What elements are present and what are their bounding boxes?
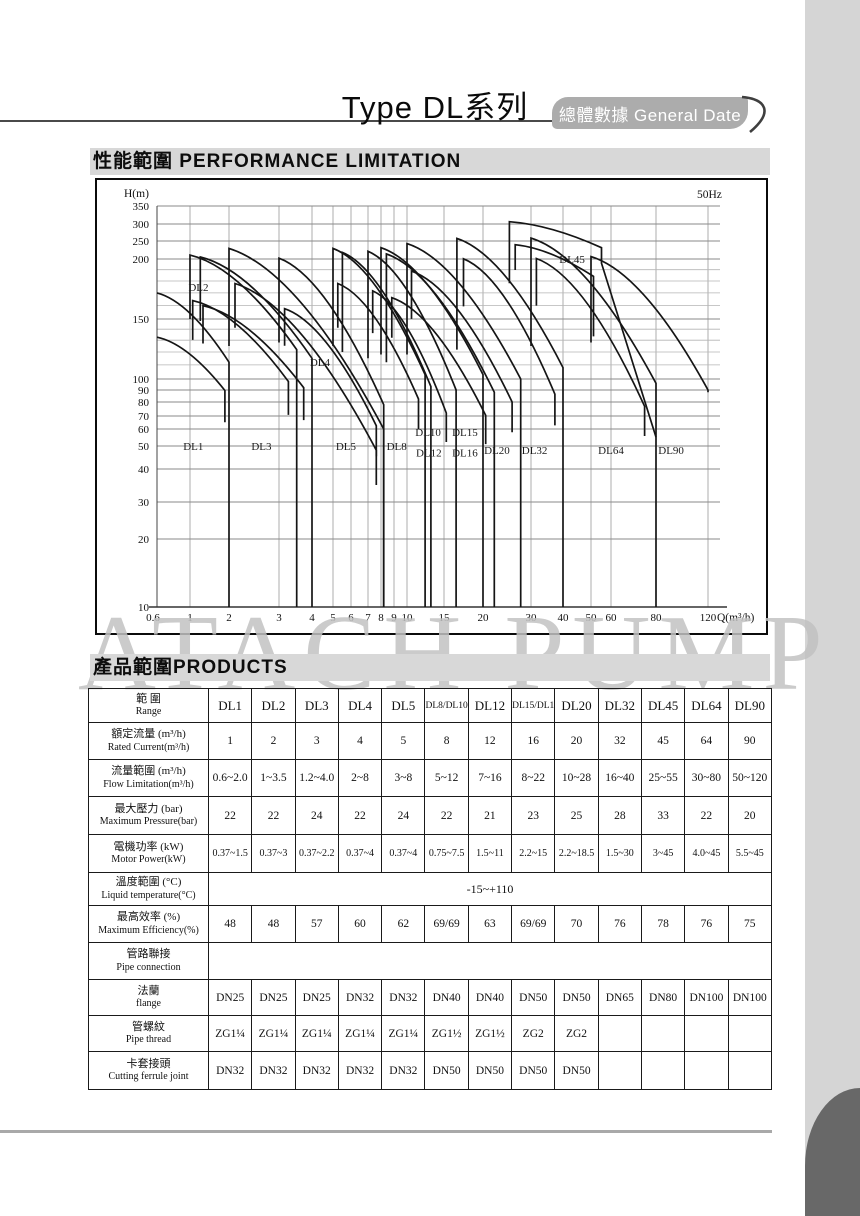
- row-label: 最大壓力 (bar)Maximum Pressure(bar): [89, 797, 209, 835]
- value-cell: 24: [295, 797, 338, 835]
- value-cell: DN25: [295, 980, 338, 1016]
- value-cell: DN50: [512, 980, 555, 1016]
- value-cell: ZG1¼: [295, 1016, 338, 1052]
- column-header-DL15-DL16: DL15/DL16: [512, 689, 555, 723]
- table-row: 最大壓力 (bar)Maximum Pressure(bar)222224222…: [89, 797, 772, 835]
- x-tick-label: 40: [558, 612, 570, 624]
- row-label-en: Range: [89, 706, 208, 718]
- y-tick-label: 100: [133, 374, 150, 386]
- value-cell: DN80: [641, 980, 684, 1016]
- value-cell: 22: [425, 797, 468, 835]
- value-cell: ZG1½: [468, 1016, 511, 1052]
- value-cell: 2: [252, 723, 295, 760]
- x-tick-label: 10: [402, 612, 414, 624]
- row-label-en: Rated Current(m³/h): [89, 742, 208, 754]
- value-cell: ZG1¼: [252, 1016, 295, 1052]
- value-cell: 76: [685, 906, 728, 943]
- value-cell: ZG2: [555, 1016, 598, 1052]
- value-cell: DN100: [685, 980, 728, 1016]
- value-cell: 32: [598, 723, 641, 760]
- column-header-DL2: DL2: [252, 689, 295, 723]
- value-cell: 78: [641, 906, 684, 943]
- row-label-zh: 最大壓力 (bar): [89, 803, 208, 817]
- value-cell: 63: [468, 906, 511, 943]
- value-cell: ZG1¼: [338, 1016, 381, 1052]
- row-label: 溫度範圍 (°C)Liquid temperature(°C): [89, 873, 209, 906]
- x-tick-label: 4: [309, 612, 315, 624]
- performance-section-header: 性能範圍 PERFORMANCE LIMITATION: [90, 148, 770, 175]
- value-cell: ZG1¼: [382, 1016, 425, 1052]
- frequency-label: 50Hz: [697, 189, 722, 201]
- value-cell: 1.5~30: [598, 835, 641, 873]
- value-cell: 75: [728, 906, 771, 943]
- products-table: 範 圍RangeDL1DL2DL3DL4DL5DL8/DL10DL12DL15/…: [88, 688, 772, 1090]
- column-header-DL20: DL20: [555, 689, 598, 723]
- column-header-DL45: DL45: [641, 689, 684, 723]
- row-label: 法蘭flange: [89, 980, 209, 1016]
- x-tick-label: 9: [391, 612, 397, 624]
- value-cell: 25: [555, 797, 598, 835]
- row-label: 管路聯接Pipe connection: [89, 943, 209, 980]
- row-label-zh: 額定流量 (m³/h): [89, 728, 208, 742]
- value-cell: DN32: [295, 1052, 338, 1090]
- y-tick-label: 350: [133, 201, 150, 213]
- pump-region-label-DL5: DL5: [336, 441, 357, 453]
- value-cell: 3~8: [382, 760, 425, 797]
- value-cell: DN25: [209, 980, 252, 1016]
- value-cell: 5~12: [425, 760, 468, 797]
- value-cell: 24: [382, 797, 425, 835]
- x-tick-label: 7: [365, 612, 371, 624]
- value-cell: 4.0~45: [685, 835, 728, 873]
- value-cell: DN32: [382, 1052, 425, 1090]
- value-cell: 1~3.5: [252, 760, 295, 797]
- row-label: 流量範圍 (m³/h)Flow Limitation(m³/h): [89, 760, 209, 797]
- pump-region-label-DL20: DL20: [484, 445, 510, 457]
- pump-region-label-DL64: DL64: [598, 445, 624, 457]
- value-cell: DN50: [555, 980, 598, 1016]
- value-cell: [641, 1052, 684, 1090]
- value-cell: 22: [209, 797, 252, 835]
- row-label-en: Motor Power(kW): [89, 854, 208, 866]
- column-header-DL90: DL90: [728, 689, 771, 723]
- y-tick-label: 90: [138, 385, 150, 397]
- value-cell: DN50: [555, 1052, 598, 1090]
- table-row: 流量範圍 (m³/h)Flow Limitation(m³/h)0.6~2.01…: [89, 760, 772, 797]
- value-cell: DN40: [468, 980, 511, 1016]
- table-row: 管螺紋Pipe threadZG1¼ZG1¼ZG1¼ZG1¼ZG1¼ZG1½ZG…: [89, 1016, 772, 1052]
- value-cell: 48: [209, 906, 252, 943]
- y-tick-label: 30: [138, 497, 150, 509]
- value-cell: 50~120: [728, 760, 771, 797]
- value-cell: 10~28: [555, 760, 598, 797]
- page-title: Type DL系列: [300, 82, 570, 127]
- value-cell: DN32: [338, 1052, 381, 1090]
- value-cell: 21: [468, 797, 511, 835]
- value-cell: [728, 1052, 771, 1090]
- value-cell: 30~80: [685, 760, 728, 797]
- table-row: 法蘭flangeDN25DN25DN25DN32DN32DN40DN40DN50…: [89, 980, 772, 1016]
- value-cell: 64: [685, 723, 728, 760]
- value-cell: 2.2~15: [512, 835, 555, 873]
- y-tick-label: 40: [138, 464, 150, 476]
- value-cell: 25~55: [641, 760, 684, 797]
- row-label-zh: 電機功率 (kW): [89, 841, 208, 855]
- row-label-zh: 溫度範圍 (°C): [89, 876, 208, 890]
- value-cell: DN25: [252, 980, 295, 1016]
- merged-value-cell: -15~+110: [209, 873, 772, 906]
- value-cell: 8~22: [512, 760, 555, 797]
- column-header-DL32: DL32: [598, 689, 641, 723]
- value-cell: 45: [641, 723, 684, 760]
- column-header-DL4: DL4: [338, 689, 381, 723]
- value-cell: 69/69: [512, 906, 555, 943]
- value-cell: 5.5~45: [728, 835, 771, 873]
- y-axis-title: H(m): [124, 188, 149, 200]
- row-label: 最高效率 (%)Maximum Efficiency(%): [89, 906, 209, 943]
- value-cell: [598, 1016, 641, 1052]
- value-cell: 1.2~4.0: [295, 760, 338, 797]
- value-cell: [728, 1016, 771, 1052]
- value-cell: 57: [295, 906, 338, 943]
- value-cell: 0.37~3: [252, 835, 295, 873]
- x-tick-label: 8: [378, 612, 384, 624]
- table-row: 最高效率 (%)Maximum Efficiency(%)48485760626…: [89, 906, 772, 943]
- row-label: 卡套接頭Cutting ferrule joint: [89, 1052, 209, 1090]
- y-tick-label: 200: [133, 254, 150, 266]
- value-cell: DN32: [209, 1052, 252, 1090]
- row-label-zh: 法蘭: [89, 985, 208, 999]
- row-label: 電機功率 (kW)Motor Power(kW): [89, 835, 209, 873]
- x-tick-label: 1: [187, 612, 193, 624]
- value-cell: 3: [295, 723, 338, 760]
- value-cell: 2.2~18.5: [555, 835, 598, 873]
- y-tick-label: 50: [138, 441, 150, 453]
- column-header-DL64: DL64: [685, 689, 728, 723]
- footer-rule: [0, 1130, 772, 1133]
- row-label-zh: 管路聯接: [89, 948, 208, 962]
- table-row: 電機功率 (kW)Motor Power(kW)0.37~1.50.37~30.…: [89, 835, 772, 873]
- value-cell: 12: [468, 723, 511, 760]
- x-tick-label: 0.6: [146, 612, 160, 624]
- value-cell: 4: [338, 723, 381, 760]
- row-label-en: Pipe connection: [89, 962, 208, 974]
- column-header-DL12: DL12: [468, 689, 511, 723]
- value-cell: DN50: [512, 1052, 555, 1090]
- pump-region-label-DL90: DL90: [658, 445, 684, 457]
- value-cell: DN65: [598, 980, 641, 1016]
- value-cell: 5: [382, 723, 425, 760]
- x-axis-title: Q(m³/h): [717, 612, 754, 624]
- y-tick-label: 20: [138, 534, 150, 546]
- section-tab-general-data: 總體數據 General Date: [552, 97, 748, 129]
- products-section-header: 產品範圍PRODUCTS: [90, 654, 770, 681]
- value-cell: ZG2: [512, 1016, 555, 1052]
- row-label-zh: 流量範圍 (m³/h): [89, 765, 208, 779]
- pump-region-label-DL32: DL32: [522, 445, 548, 457]
- value-cell: 0.37~2.2: [295, 835, 338, 873]
- pump-region-label-DL16: DL16: [452, 447, 478, 459]
- row-label-zh: 卡套接頭: [89, 1058, 208, 1072]
- pump-region-label-DL45: DL45: [559, 254, 585, 266]
- value-cell: [685, 1052, 728, 1090]
- x-tick-label: 6: [348, 612, 354, 624]
- table-row: 卡套接頭Cutting ferrule jointDN32DN32DN32DN3…: [89, 1052, 772, 1090]
- value-cell: 8: [425, 723, 468, 760]
- table-row: 溫度範圍 (°C)Liquid temperature(°C)-15~+110: [89, 873, 772, 906]
- value-cell: 0.6~2.0: [209, 760, 252, 797]
- pump-envelope-DL32: [457, 238, 563, 607]
- value-cell: ZG1¼: [209, 1016, 252, 1052]
- y-tick-label: 250: [133, 236, 150, 248]
- pump-region-label-DL10: DL10: [415, 427, 441, 439]
- value-cell: 22: [338, 797, 381, 835]
- pump-region-label-DL2: DL2: [188, 282, 208, 294]
- value-cell: 48: [252, 906, 295, 943]
- value-cell: DN100: [728, 980, 771, 1016]
- value-cell: DN32: [252, 1052, 295, 1090]
- pump-region-label-DL3: DL3: [251, 441, 272, 453]
- x-tick-label: 2: [226, 612, 232, 624]
- x-tick-label: 50: [586, 612, 598, 624]
- value-cell: 23: [512, 797, 555, 835]
- row-label-zh: 範 圍: [89, 693, 208, 707]
- value-cell: 3~45: [641, 835, 684, 873]
- x-tick-label: 30: [526, 612, 538, 624]
- pump-region-label-DL8: DL8: [387, 441, 408, 453]
- x-tick-label: 15: [439, 612, 451, 624]
- row-label-en: Pipe thread: [89, 1034, 208, 1046]
- row-label-en: Maximum Efficiency(%): [89, 925, 208, 937]
- value-cell: 0.37~1.5: [209, 835, 252, 873]
- row-label-en: Liquid temperature(°C): [89, 890, 208, 902]
- pump-envelope-DL2: [190, 255, 297, 607]
- value-cell: 0.75~7.5: [425, 835, 468, 873]
- value-cell: 0.37~4: [338, 835, 381, 873]
- value-cell: 33: [641, 797, 684, 835]
- row-label-en: flange: [89, 998, 208, 1010]
- row-label: 範 圍Range: [89, 689, 209, 723]
- y-tick-label: 70: [138, 411, 150, 423]
- value-cell: 2~8: [338, 760, 381, 797]
- performance-chart-svg: DL1DL2DL3DL4DL5DL8DL10DL12DL15DL16DL20DL…: [97, 180, 765, 632]
- value-cell: [598, 1052, 641, 1090]
- pump-envelope-DL2-inner: [193, 301, 289, 415]
- catalog-page: Type DL系列 總體數據 General Date 性能範圍 PERFORM…: [0, 0, 860, 1216]
- column-header-DL3: DL3: [295, 689, 338, 723]
- value-cell: DN32: [382, 980, 425, 1016]
- pump-region-label-DL1: DL1: [183, 441, 203, 453]
- value-cell: 69/69: [425, 906, 468, 943]
- value-cell: 20: [728, 797, 771, 835]
- column-header-DL5: DL5: [382, 689, 425, 723]
- value-cell: 70: [555, 906, 598, 943]
- x-tick-label: 60: [606, 612, 618, 624]
- column-header-DL8-DL10: DL8/DL10: [425, 689, 468, 723]
- value-cell: 22: [685, 797, 728, 835]
- row-label-zh: 管螺紋: [89, 1021, 208, 1035]
- column-header-DL1: DL1: [209, 689, 252, 723]
- value-cell: [641, 1016, 684, 1052]
- value-cell: 0.37~4: [382, 835, 425, 873]
- row-label: 管螺紋Pipe thread: [89, 1016, 209, 1052]
- row-label-en: Cutting ferrule joint: [89, 1071, 208, 1083]
- value-cell: 7~16: [468, 760, 511, 797]
- value-cell: 28: [598, 797, 641, 835]
- table-header-row: 範 圍RangeDL1DL2DL3DL4DL5DL8/DL10DL12DL15/…: [89, 689, 772, 723]
- x-tick-label: 5: [330, 612, 336, 624]
- value-cell: [685, 1016, 728, 1052]
- tab-label: 總體數據 General Date: [559, 101, 741, 126]
- row-label-zh: 最高效率 (%): [89, 911, 208, 925]
- pump-region-label-DL15: DL15: [452, 427, 478, 439]
- y-tick-label: 300: [133, 219, 150, 231]
- pump-region-label-DL12: DL12: [416, 447, 442, 459]
- table-row: 額定流量 (m³/h)Rated Current(m³/h)1234581216…: [89, 723, 772, 760]
- value-cell: ZG1½: [425, 1016, 468, 1052]
- x-tick-label: 80: [651, 612, 663, 624]
- pump-envelope-DL1-inner: [157, 337, 225, 422]
- x-tick-label: 120: [700, 612, 717, 624]
- row-label-en: Maximum Pressure(bar): [89, 816, 208, 828]
- y-tick-label: 80: [138, 397, 150, 409]
- merged-value-cell: [209, 943, 772, 980]
- table-row: 管路聯接Pipe connection: [89, 943, 772, 980]
- value-cell: 1.5~11: [468, 835, 511, 873]
- value-cell: 22: [252, 797, 295, 835]
- row-label: 額定流量 (m³/h)Rated Current(m³/h): [89, 723, 209, 760]
- y-tick-label: 150: [133, 314, 150, 326]
- value-cell: DN50: [425, 1052, 468, 1090]
- row-label-en: Flow Limitation(m³/h): [89, 779, 208, 791]
- value-cell: 90: [728, 723, 771, 760]
- pump-region-label-DL4: DL4: [310, 357, 331, 369]
- value-cell: 62: [382, 906, 425, 943]
- value-cell: 1: [209, 723, 252, 760]
- value-cell: 16~40: [598, 760, 641, 797]
- x-tick-label: 3: [276, 612, 282, 624]
- value-cell: 60: [338, 906, 381, 943]
- page-edge-strip: [805, 0, 860, 1216]
- tab-arc-decoration: [740, 94, 780, 136]
- performance-chart: DL1DL2DL3DL4DL5DL8DL10DL12DL15DL16DL20DL…: [95, 178, 768, 635]
- value-cell: DN32: [338, 980, 381, 1016]
- y-tick-label: 60: [138, 424, 150, 436]
- value-cell: 76: [598, 906, 641, 943]
- value-cell: DN50: [468, 1052, 511, 1090]
- value-cell: 20: [555, 723, 598, 760]
- x-tick-label: 20: [478, 612, 490, 624]
- pump-envelope-DL4: [229, 248, 384, 607]
- value-cell: 16: [512, 723, 555, 760]
- value-cell: DN40: [425, 980, 468, 1016]
